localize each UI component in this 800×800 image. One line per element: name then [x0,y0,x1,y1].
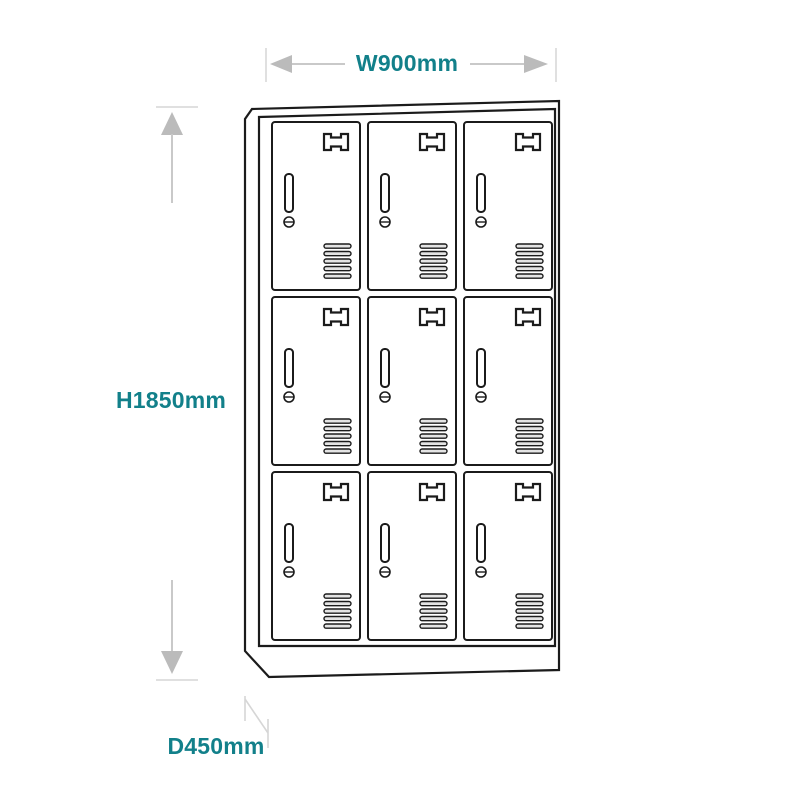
vent-louver [324,624,351,628]
vent-louver [516,449,543,453]
vent-louver [516,434,543,438]
lock-slot [285,524,293,562]
locker-door-r3c2 [368,472,456,640]
locker-door-r1c2 [368,122,456,290]
locker-doors-grid [272,122,552,640]
vent-louver [324,419,351,423]
vent-louver [420,252,447,256]
vent-louver [516,442,543,446]
door-handle [420,134,444,150]
vent-louver [324,252,351,256]
diagram-canvas: W900mm H1850mm D450mm [0,0,800,800]
door-handle [516,309,540,325]
vent-louver [516,602,543,606]
vent-louver [420,602,447,606]
locker-drawing [245,101,559,677]
depth-line [245,699,268,733]
vent-louver [420,442,447,446]
door-handle [420,309,444,325]
vent-louver [324,609,351,613]
vent-louver [324,274,351,278]
vent-louver [516,427,543,431]
lock-slot [381,174,389,212]
lock-slot [285,174,293,212]
vent-louver [420,624,447,628]
locker-door-r3c1 [272,472,360,640]
vent-louver [516,267,543,271]
vent-louver [420,267,447,271]
locker-door-r2c2 [368,297,456,465]
vent-louver [516,274,543,278]
locker-door-r1c3 [464,122,552,290]
lock-slot [477,524,485,562]
arrow-up-icon [161,112,183,135]
vent-louver [516,259,543,263]
vent-louver [324,602,351,606]
vent-louver [324,427,351,431]
vent-louver [516,419,543,423]
vent-louver [324,259,351,263]
lock-slot [381,524,389,562]
vent-louver [324,617,351,621]
vent-louver [420,609,447,613]
door-handle [324,484,348,500]
vent-louver [324,594,351,598]
locker-door-r2c3 [464,297,552,465]
vent-louver [420,434,447,438]
vent-louver [516,617,543,621]
door-handle [420,484,444,500]
locker-door-r2c1 [272,297,360,465]
lock-slot [381,349,389,387]
locker-door-r1c1 [272,122,360,290]
vent-louver [324,244,351,248]
vent-louver [420,594,447,598]
vent-louver [516,252,543,256]
vent-louver [420,259,447,263]
vent-louver [516,624,543,628]
vent-louver [420,427,447,431]
lock-slot [477,174,485,212]
vent-louver [420,244,447,248]
vent-louver [420,419,447,423]
vent-louver [516,594,543,598]
door-handle [324,134,348,150]
vent-louver [516,244,543,248]
locker-door-r3c3 [464,472,552,640]
door-handle [516,484,540,500]
arrow-left-icon [270,55,292,73]
vent-louver [324,449,351,453]
door-handle [324,309,348,325]
depth-dimension-label: D450mm [116,733,316,760]
arrow-down-icon [161,651,183,674]
vent-louver [420,274,447,278]
door-handle [516,134,540,150]
arrow-right-icon [524,55,548,73]
vent-louver [324,434,351,438]
lock-slot [477,349,485,387]
vent-louver [420,617,447,621]
vent-louver [420,449,447,453]
vent-louver [324,442,351,446]
vent-louver [324,267,351,271]
width-dimension-label: W900mm [307,50,507,77]
height-dimension-label: H1850mm [71,387,271,414]
vent-louver [516,609,543,613]
lock-slot [285,349,293,387]
